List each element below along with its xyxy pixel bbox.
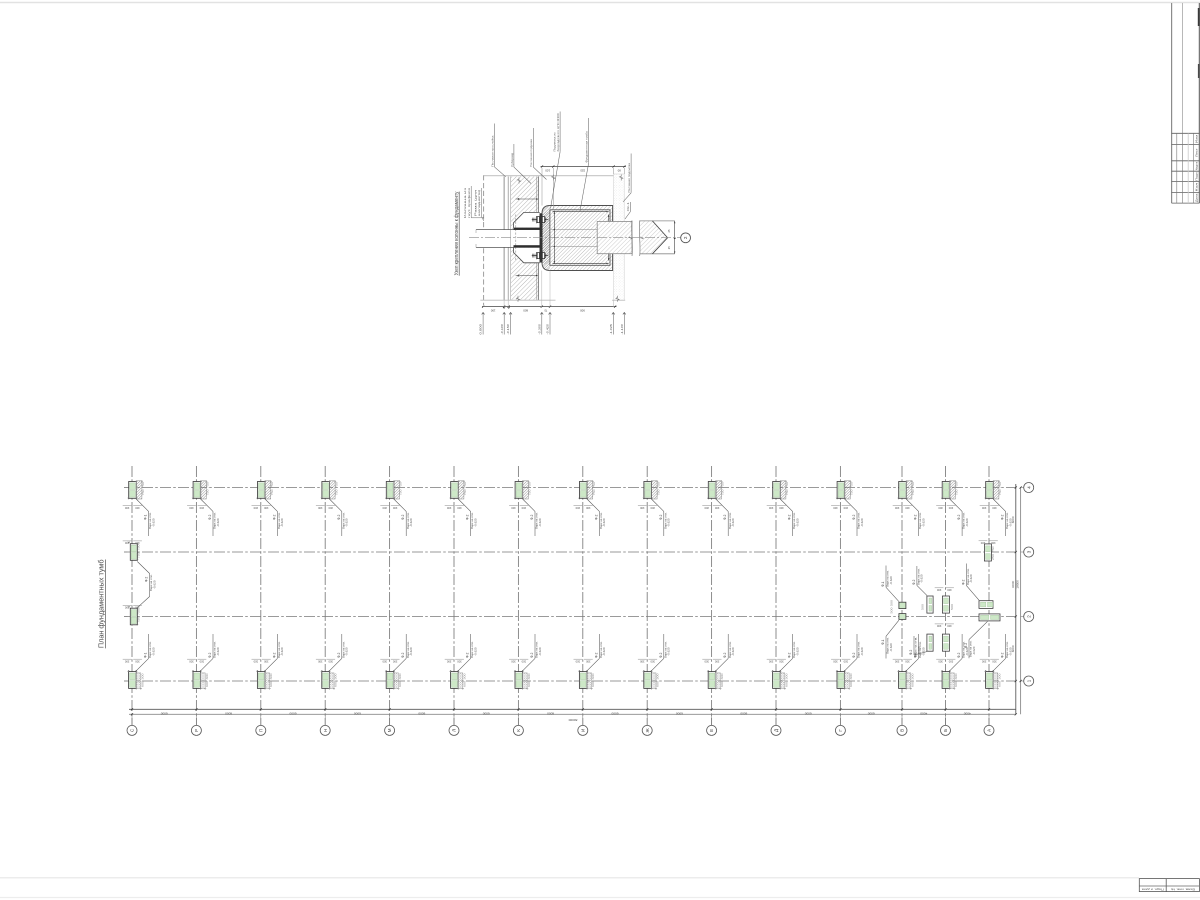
svg-text:300: 300 [992, 506, 997, 510]
svg-text:300: 300 [843, 659, 848, 663]
svg-text:300: 300 [521, 659, 526, 663]
svg-text:Ф-2: Ф-2 [466, 652, 470, 657]
svg-text:300: 300 [938, 659, 943, 663]
svg-text:Ф-2: Ф-2 [145, 577, 149, 582]
svg-text:Л: Л [452, 729, 457, 732]
svg-text:300: 300 [189, 659, 194, 663]
svg-text:Ф-2: Ф-2 [401, 652, 405, 657]
svg-text:6000: 6000 [160, 712, 167, 716]
svg-text:300: 300 [457, 659, 462, 663]
svg-text:6000: 6000 [804, 712, 811, 716]
svg-text:-1.025: -1.025 [609, 324, 613, 335]
svg-text:300: 300 [199, 659, 204, 663]
svg-text:300: 300 [948, 659, 953, 663]
svg-text:300: 300 [843, 506, 848, 510]
svg-text:Б: Б [943, 729, 948, 732]
svg-text:-0.620: -0.620 [917, 646, 921, 655]
svg-text:6000: 6000 [225, 712, 232, 716]
svg-text:300: 300 [575, 506, 580, 510]
svg-text:300: 300 [586, 506, 591, 510]
svg-text:-0.620: -0.620 [602, 647, 606, 656]
svg-text:6000: 6000 [611, 712, 618, 716]
svg-text:300: 300 [328, 506, 333, 510]
svg-text:300: 300 [936, 624, 941, 628]
svg-text:Песчаная прослойка: Песчаная прослойка [491, 135, 495, 167]
svg-text:300: 300 [124, 659, 129, 663]
svg-text:М: М [387, 728, 392, 732]
svg-text:300: 300 [124, 541, 129, 545]
svg-text:-0.620: -0.620 [969, 574, 973, 583]
svg-text:300: 300 [650, 659, 655, 663]
svg-text:Ф-2: Ф-2 [852, 652, 856, 657]
svg-text:-0.620: -0.620 [731, 647, 735, 656]
svg-text:Ф-2: Ф-2 [852, 514, 856, 519]
svg-text:300: 300 [992, 659, 997, 663]
svg-text:300: 300 [199, 506, 204, 510]
svg-text:300: 300 [575, 659, 580, 663]
svg-text:-0.620: -0.620 [860, 518, 864, 527]
svg-text:Ф-2: Ф-2 [788, 514, 792, 519]
svg-text:Дата: Дата [1194, 193, 1198, 202]
svg-text:300: 300 [318, 659, 323, 663]
svg-text:300: 300 [768, 659, 773, 663]
svg-text:Ф-2: Ф-2 [466, 514, 470, 519]
svg-text:-0.620: -0.620 [473, 647, 477, 656]
svg-text:Ф-2: Ф-2 [964, 643, 968, 648]
svg-text:300: 300 [938, 506, 943, 510]
svg-text:-0.620: -0.620 [972, 646, 976, 655]
svg-text:4000: 4000 [964, 712, 971, 716]
svg-text:300: 300 [991, 541, 996, 545]
svg-text:А: А [987, 729, 992, 732]
svg-text:300: 300 [704, 659, 709, 663]
svg-text:300: 300 [135, 541, 140, 545]
svg-text:-0.620: -0.620 [409, 647, 413, 656]
svg-text:-0.620: -0.620 [602, 518, 606, 527]
svg-text:Ф-2: Ф-2 [723, 652, 727, 657]
svg-text:Ф-2: Ф-2 [909, 650, 913, 655]
svg-text:300: 300 [392, 659, 397, 663]
svg-text:300: 300 [318, 506, 323, 510]
svg-text:Лист: Лист [1194, 147, 1198, 157]
svg-text:300: 300 [981, 506, 986, 510]
svg-text:Ф-2: Ф-2 [1001, 514, 1005, 519]
svg-text:300: 300 [382, 659, 387, 663]
svg-text:Ф-2: Ф-2 [530, 652, 534, 657]
svg-text:План фундаментных тумб: План фундаментных тумб [96, 560, 105, 649]
svg-text:Ф-2: Ф-2 [788, 652, 792, 657]
svg-text:-0.620: -0.620 [860, 647, 864, 656]
svg-text:-0.620: -0.620 [731, 518, 735, 527]
svg-text:Ф-2: Ф-2 [594, 652, 598, 657]
svg-text:300: 300 [650, 506, 655, 510]
svg-text:6000: 6000 [482, 712, 489, 716]
svg-text:100: 100 [545, 169, 550, 173]
svg-text:-0.620: -0.620 [667, 647, 671, 656]
svg-text:-0.100: -0.100 [500, 324, 504, 335]
svg-text:300: 300 [640, 659, 645, 663]
svg-text:300: 300 [253, 506, 258, 510]
svg-text:18000: 18000 [1015, 580, 1019, 589]
svg-text:-0.620: -0.620 [920, 574, 924, 583]
svg-text:-0.620: -0.620 [151, 518, 155, 527]
svg-text:300: 300 [714, 506, 719, 510]
svg-text:300: 300 [264, 506, 269, 510]
svg-text:Ф-1: Ф-1 [881, 639, 885, 644]
svg-text:300: 300 [382, 506, 387, 510]
svg-text:600: 600 [523, 309, 528, 313]
svg-text:300: 300 [511, 506, 516, 510]
svg-text:300: 300 [446, 506, 451, 510]
svg-text:300: 300 [704, 506, 709, 510]
svg-text:Ф-2: Ф-2 [208, 652, 212, 657]
svg-text:В: В [900, 729, 905, 732]
svg-text:-0.150: -0.150 [506, 324, 510, 335]
svg-text:300: 300 [640, 506, 645, 510]
svg-text:300: 300 [586, 659, 591, 663]
svg-text:300: 300 [124, 506, 129, 510]
svg-text:Ф-2: Ф-2 [659, 514, 663, 519]
svg-text:6000: 6000 [867, 712, 874, 716]
svg-text:Ф-2: Ф-2 [208, 514, 212, 519]
svg-text:Ф-2: Ф-2 [914, 514, 918, 519]
svg-text:П: П [258, 729, 263, 732]
svg-text:6000: 6000 [354, 712, 361, 716]
svg-text:Песчаная подсыпка: Песчаная подсыпка [627, 163, 631, 193]
svg-text:-0.620: -0.620 [795, 647, 799, 656]
svg-text:300: 300 [947, 588, 952, 592]
svg-text:300: 300 [189, 506, 194, 510]
svg-text:300: 300 [124, 606, 129, 610]
svg-text:-0.620: -0.620 [151, 647, 155, 656]
svg-text:Р: Р [194, 729, 199, 732]
svg-text:Д: Д [774, 729, 779, 732]
svg-text:Ф-2: Ф-2 [1001, 652, 1005, 657]
svg-text:0.000: 0.000 [479, 324, 483, 335]
svg-text:-0.620: -0.620 [921, 518, 925, 527]
svg-text:Кол: Кол [1194, 182, 1198, 191]
svg-text:-0.620: -0.620 [889, 643, 893, 652]
svg-text:300: 300 [135, 506, 140, 510]
svg-text:-0.620: -0.620 [538, 518, 542, 527]
svg-text:Ф-2: Ф-2 [530, 514, 534, 519]
svg-text:Ф-2: Ф-2 [723, 514, 727, 519]
svg-text:Фундаментная тумба: Фундаментная тумба [585, 131, 589, 163]
svg-text:Ф-1: Ф-1 [881, 581, 885, 586]
svg-text:300: 300 [521, 506, 526, 510]
svg-text:Ф-2: Ф-2 [957, 514, 961, 519]
svg-text:300: 300 [779, 659, 784, 663]
svg-text:300: 300 [833, 659, 838, 663]
svg-text:Ф-2: Ф-2 [337, 514, 341, 519]
svg-text:-0.620: -0.620 [889, 576, 893, 585]
svg-text:6000: 6000 [289, 712, 296, 716]
svg-text:гнут. профиля: гнут. профиля [467, 187, 471, 218]
svg-text:300: 300 [253, 659, 258, 663]
svg-text:-0.620: -0.620 [409, 518, 413, 527]
svg-text:-0.300: -0.300 [537, 324, 541, 335]
svg-text:300: 300 [905, 506, 910, 510]
svg-text:-1.100: -1.100 [620, 324, 624, 335]
svg-text:Ф-1: Ф-1 [144, 514, 148, 519]
svg-text:-0.620: -0.620 [538, 647, 542, 656]
svg-text:300: 300 [980, 541, 985, 545]
svg-text:300: 300 [511, 659, 516, 663]
svg-text:-0.620: -0.620 [280, 647, 284, 656]
svg-text:Подп: Подп [1194, 171, 1198, 180]
svg-text:Подп. и дата: Подп. и дата [1141, 887, 1164, 891]
svg-text:Е: Е [709, 729, 714, 732]
svg-text:100: 100 [490, 309, 495, 313]
svg-text:-0.620: -0.620 [345, 647, 349, 656]
svg-text:наглядности): наглядности) [477, 190, 481, 216]
svg-text:Ф-2: Ф-2 [594, 514, 598, 519]
svg-text:-0.620: -0.620 [216, 518, 220, 527]
svg-text:300: 300 [779, 506, 784, 510]
svg-text:Ос-1: Ос-1 [626, 202, 630, 211]
svg-text:Изм: Изм [1194, 134, 1198, 143]
svg-text:4000: 4000 [920, 712, 927, 716]
svg-text:Ф-2: Ф-2 [401, 514, 405, 519]
svg-text:6000: 6000 [1011, 645, 1015, 652]
svg-text:Ф-2: Ф-2 [272, 514, 276, 519]
svg-text:300: 300 [948, 506, 953, 510]
svg-text:-0.420: -0.420 [546, 324, 550, 335]
svg-text:-0.620: -0.620 [473, 518, 477, 527]
svg-text:300: 300 [264, 659, 269, 663]
svg-text:300: 300 [714, 659, 719, 663]
svg-text:безусадочного ЦПС М300: безусадочного ЦПС М300 [556, 113, 560, 152]
svg-text:6000: 6000 [1011, 516, 1015, 523]
svg-text:-0.620: -0.620 [345, 518, 349, 527]
svg-text:Ф-2: Ф-2 [961, 579, 965, 584]
svg-text:Ф-2: Ф-2 [337, 652, 341, 657]
svg-text:300: 300 [392, 506, 397, 510]
svg-text:-0.620: -0.620 [216, 647, 220, 656]
svg-text:300: 300 [135, 659, 140, 663]
svg-text:Ф-2: Ф-2 [912, 579, 916, 584]
svg-text:6000: 6000 [676, 712, 683, 716]
svg-text:300: 300 [768, 506, 773, 510]
svg-text:Ф-2: Ф-2 [272, 652, 276, 657]
svg-text:Ф-2: Ф-2 [659, 652, 663, 657]
svg-text:900: 900 [580, 309, 585, 313]
svg-text:6000: 6000 [547, 712, 554, 716]
svg-text:№док: №док [1195, 161, 1198, 170]
svg-text:-0.620: -0.620 [280, 518, 284, 527]
svg-text:300: 300 [981, 659, 986, 663]
svg-text:300: 300 [947, 624, 952, 628]
svg-text:-0.620: -0.620 [921, 647, 925, 656]
svg-text:И: И [580, 729, 585, 732]
svg-text:К: К [516, 729, 521, 732]
svg-text:300: 300 [328, 659, 333, 663]
svg-text:Взам. инв. №: Взам. инв. № [1171, 887, 1195, 891]
svg-text:80: 80 [617, 169, 621, 173]
svg-text:-0.620: -0.620 [965, 518, 969, 527]
svg-text:Ф-2: Ф-2 [957, 652, 961, 657]
svg-text:Песчаная подушка: Песчаная подушка [529, 139, 533, 167]
svg-text:-0.620: -0.620 [667, 518, 671, 527]
svg-text:6000: 6000 [418, 712, 425, 716]
svg-text:300: 300 [446, 659, 451, 663]
svg-text:300: 300 [894, 506, 899, 510]
svg-text:300: 300 [833, 506, 838, 510]
svg-text:300: 300 [457, 506, 462, 510]
svg-text:525: 525 [580, 169, 585, 173]
svg-text:6000: 6000 [1011, 581, 1015, 588]
svg-text:Рубероид: Рубероид [510, 153, 514, 167]
svg-text:80000: 80000 [568, 718, 577, 722]
svg-text:-0.620: -0.620 [795, 518, 799, 527]
svg-text:6000: 6000 [740, 712, 747, 716]
svg-text:Н: Н [323, 729, 328, 732]
svg-text:-0.620: -0.620 [152, 580, 156, 589]
svg-text:300: 300 [905, 659, 910, 663]
svg-text:Ф-1: Ф-1 [144, 652, 148, 657]
svg-text:300: 300 [894, 659, 899, 663]
svg-text:300: 300 [936, 588, 941, 592]
